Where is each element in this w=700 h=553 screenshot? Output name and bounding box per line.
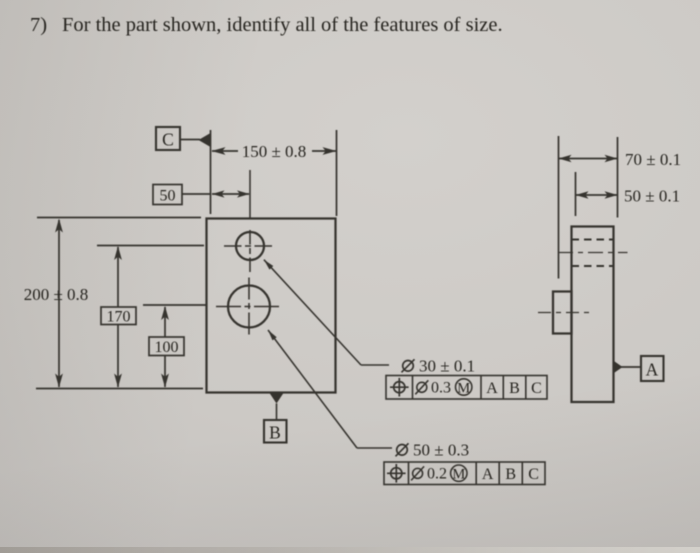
svg-text:C: C [162,130,174,150]
svg-text:C: C [528,466,539,483]
svg-text:70 ± 0.1: 70 ± 0.1 [625,150,681,169]
svg-text:100: 100 [155,339,179,356]
svg-text:A: A [646,360,659,380]
svg-text:150 ± 0.8: 150 ± 0.8 [242,142,307,161]
svg-text:0.3: 0.3 [431,380,451,397]
svg-text:B: B [269,423,281,443]
svg-text:A: A [482,466,494,483]
svg-text:C: C [531,380,542,397]
svg-text:50 ± 0.3: 50 ± 0.3 [413,441,469,460]
svg-text:170: 170 [107,309,131,326]
svg-text:7): 7) [30,14,47,36]
svg-text:A: A [486,380,498,397]
svg-text:30 ± 0.1: 30 ± 0.1 [419,357,475,376]
svg-text:M: M [452,467,465,483]
svg-text:M: M [457,380,470,396]
svg-text:50: 50 [160,188,176,205]
svg-text:B: B [509,380,520,397]
svg-text:200 ± 0.8: 200 ± 0.8 [24,285,89,304]
svg-text:B: B [505,466,516,483]
svg-text:50 ± 0.1: 50 ± 0.1 [624,187,680,206]
svg-text:0.2: 0.2 [427,466,447,483]
svg-text:For the part shown, identify a: For the part shown, identify all of the … [62,14,503,36]
